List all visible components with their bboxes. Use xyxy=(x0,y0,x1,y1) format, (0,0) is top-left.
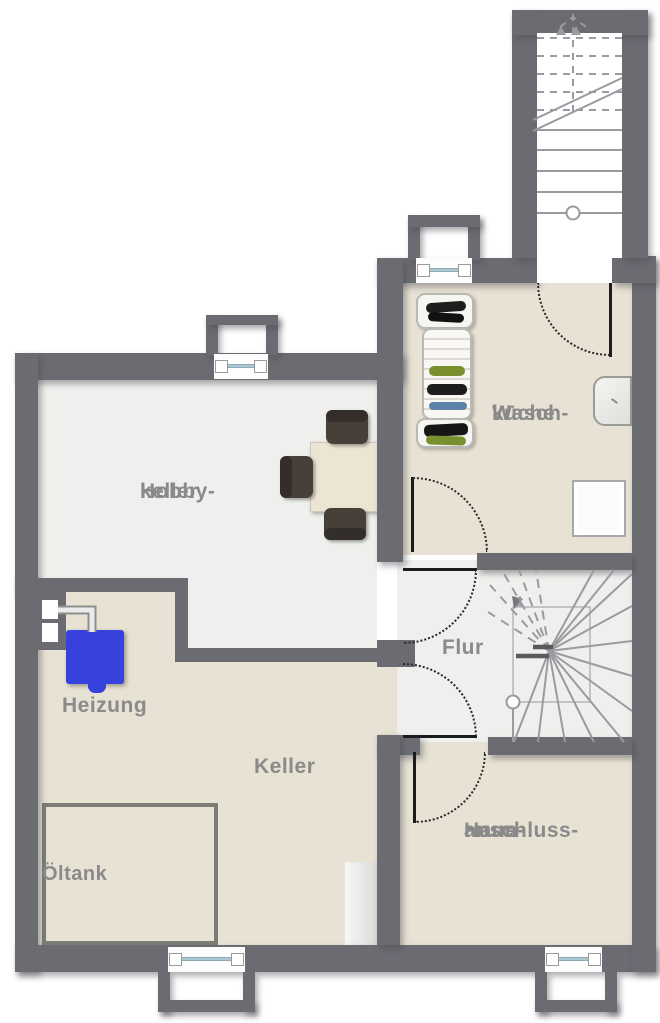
stair-step-number: 1 xyxy=(516,588,524,615)
heater-pipe xyxy=(58,610,92,632)
interior-winder-staircase xyxy=(488,570,632,742)
basement-floorplan: Hobby- keller Wasch- küche Heizung Kelle… xyxy=(0,0,660,1023)
exterior-staircase xyxy=(533,14,622,220)
